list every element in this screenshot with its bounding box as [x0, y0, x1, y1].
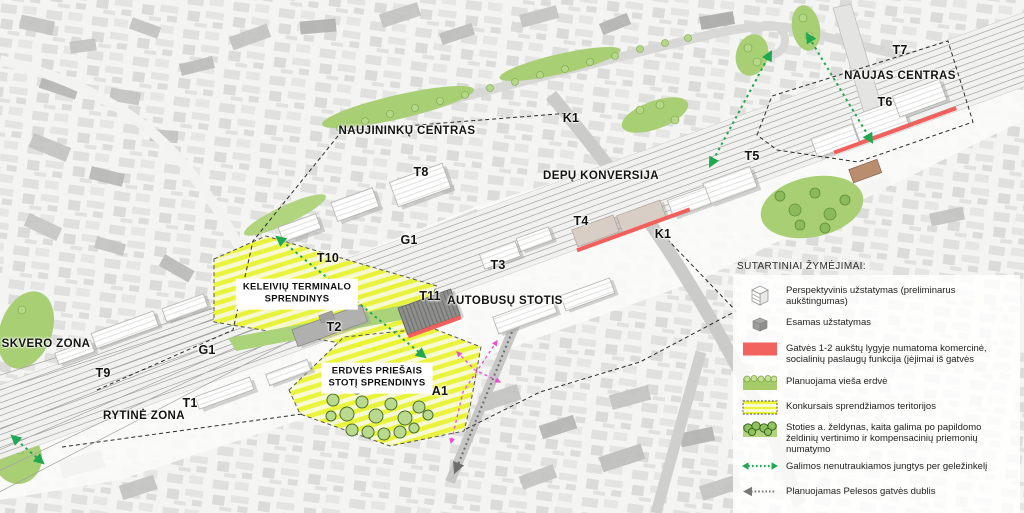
existing-building-icon — [741, 316, 779, 332]
terminal-competition-label: KELEIVIŲ TERMINALO SPRENDINYS — [236, 279, 358, 310]
legend-row-competition: Konkursais sprendžiamos teritorijos — [741, 400, 1014, 415]
station-greenery-icon — [741, 421, 779, 437]
masterplan-map: NAUJININKŲ CENTRAS K1 DEPŲ KONVERSIJA T8… — [0, 0, 1024, 513]
legend-label: Stoties a. želdynas, kaita galima po pap… — [786, 421, 1014, 456]
pelesos-street-arrow-icon — [741, 485, 779, 498]
area-label-depu-konversija: DEPŲ KONVERSIJA — [543, 170, 659, 182]
legend-row-pelesos: Planuojamas Pelesos gatvės dublis — [741, 485, 1014, 498]
zone-label-t1: T1 — [183, 396, 198, 410]
street-label-g1-west: G1 — [198, 343, 215, 357]
area-label-rytine-zona: RYTINĖ ZONA — [103, 410, 185, 422]
station-square-competition-label: ERDVĖS PRIEŠAIS STOTĮ SPRENDINYS — [321, 363, 432, 394]
legend-label: Planuojamas Pelesos gatvės dublis — [786, 485, 935, 497]
competition-area-swatch — [741, 400, 779, 415]
zone-label-t2: T2 — [327, 320, 342, 334]
legend-title: SUTARTINIAI ŽYMĖJIMAI: — [737, 261, 866, 272]
zone-label-t3: T3 — [491, 258, 506, 272]
area-label-autobusu-stotis: AUTOBUSŲ STOTIS — [447, 295, 562, 307]
legend-panel: Perspektyvinis užstatymas (preliminarus … — [733, 275, 1020, 513]
zone-label-t4: T4 — [574, 214, 589, 228]
zone-label-t7: T7 — [893, 43, 908, 57]
street-label-k1-south: K1 — [655, 227, 671, 241]
public-space-swatch — [741, 375, 779, 390]
legend-row-commercial: Gatvės 1-2 aukštų lygyje numatoma komerc… — [741, 342, 1014, 366]
legend-row-perspective: Perspektyvinis užstatymas (preliminarus … — [741, 284, 1014, 308]
legend-label: Perspektyvinis užstatymas (preliminarus … — [786, 284, 1014, 308]
zone-label-t6: T6 — [878, 95, 893, 109]
area-label-naujininku-centras: NAUJININKŲ CENTRAS — [339, 125, 476, 137]
terminal-competition-line2: SPRENDINYS — [243, 294, 351, 306]
zone-label-t11: T11 — [419, 289, 440, 303]
area-label-naujas-centras: NAUJAS CENTRAS — [844, 70, 956, 82]
terminal-competition-line1: KELEIVIŲ TERMINALO — [243, 282, 351, 294]
legend-label: Gatvės 1-2 aukštų lygyje numatoma komerc… — [786, 342, 1014, 366]
zone-label-t9: T9 — [96, 366, 111, 380]
street-label-g1-north: G1 — [400, 233, 417, 247]
legend-label: Planuojama vieša erdvė — [786, 375, 887, 387]
station-square-line1: ERDVĖS PRIEŠAIS — [328, 366, 425, 378]
zone-label-t5: T5 — [745, 149, 760, 163]
legend-row-existing: Esamas užstatymas — [741, 316, 1014, 332]
area-label-skvero-zona: SKVERO ZONA — [2, 338, 91, 350]
legend-row-greenery: Stoties a. želdynas, kaita galima po pap… — [741, 421, 1014, 456]
zone-label-a1: A1 — [432, 384, 448, 398]
zone-label-t8: T8 — [414, 165, 429, 179]
rail-connection-arrow-icon — [741, 460, 779, 473]
legend-label: Galimos nenutraukiamos jungtys per gelež… — [786, 460, 987, 472]
legend-row-public-space: Planuojama vieša erdvė — [741, 375, 1014, 390]
perspective-building-icon — [741, 284, 779, 306]
legend-label: Esamas užstatymas — [786, 316, 871, 328]
legend-label: Konkursais sprendžiamos teritorijos — [786, 400, 936, 412]
street-label-k1-north: K1 — [563, 111, 579, 125]
zone-label-t10: T10 — [317, 251, 339, 265]
station-square-line2: STOTĮ SPRENDINYS — [328, 378, 425, 390]
commercial-frontage-swatch — [741, 342, 779, 356]
legend-row-connections: Galimos nenutraukiamos jungtys per gelež… — [741, 460, 1014, 473]
